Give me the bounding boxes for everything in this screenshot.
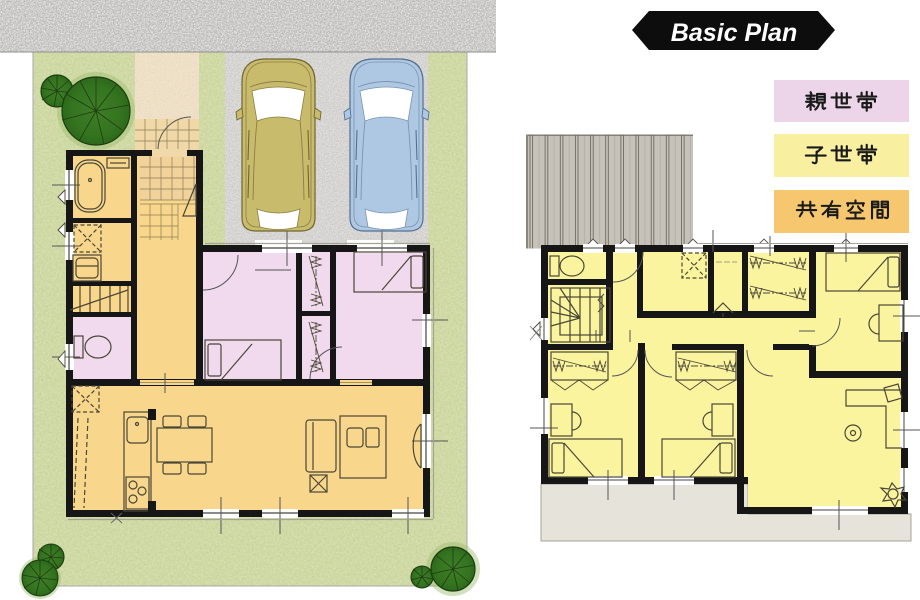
svg-text:Basic Plan: Basic Plan [671, 19, 797, 47]
